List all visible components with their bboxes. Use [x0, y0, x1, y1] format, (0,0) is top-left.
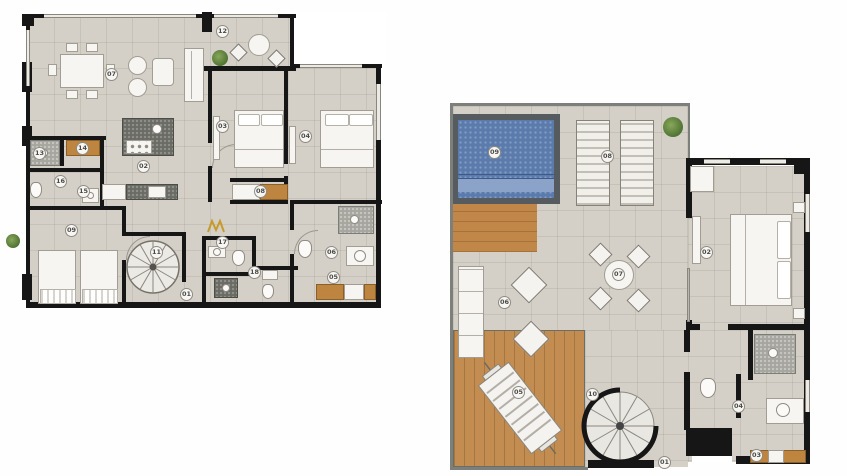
nightstand [793, 308, 805, 319]
room-label-bedroom-3: 09 [65, 224, 78, 237]
room-label-staircase: 11 [150, 246, 163, 259]
closet [690, 166, 714, 192]
room-label-closet: 14 [76, 142, 89, 155]
pool-shallow-step [458, 178, 554, 192]
plant-icon [663, 117, 683, 137]
hammock-icon [455, 352, 585, 464]
room-label-outdoor-dining: 07 [612, 268, 625, 281]
wood-deck-pool [453, 204, 537, 252]
nightstand [793, 202, 805, 213]
room-label-deck: 05 [512, 386, 525, 399]
wardrobe [692, 216, 701, 264]
parapet [450, 467, 588, 470]
floorplan-canvas: 12 07 02 03 04 08 13 14 16 15 09 11 01 1… [0, 0, 847, 476]
room-label-bathroom-3: 18 [248, 266, 261, 279]
room-label-bathroom-4: 06 [325, 246, 338, 259]
wall-pier [686, 428, 732, 456]
wall [684, 330, 690, 352]
sun-lounger [620, 120, 654, 206]
room-label-bedroom-1: 03 [216, 120, 229, 133]
room-label-kitchen: 02 [137, 160, 150, 173]
room-label-utility: 16 [54, 175, 67, 188]
room-label-hallway: 01 [180, 288, 193, 301]
vanity-white [768, 450, 784, 463]
room-label-pool: 09 [488, 146, 501, 159]
parapet [688, 103, 690, 161]
wall [684, 372, 690, 430]
wall-pier [794, 158, 810, 174]
window [760, 159, 786, 164]
bench-sofa [458, 266, 484, 358]
room-label-bathroom: 04 [732, 400, 745, 413]
room-label-living-dining: 07 [105, 68, 118, 81]
window [704, 159, 730, 164]
room-label-bedroom-2: 04 [299, 130, 312, 143]
basin [776, 403, 790, 417]
room-label-bathroom-1: 13 [33, 147, 46, 160]
room-label-dressing: 08 [254, 185, 267, 198]
room-label-bathroom-2: 15 [77, 185, 90, 198]
room-label-hall: 01 [658, 456, 671, 469]
shower-drain [768, 348, 778, 358]
room-label-bedroom: 02 [700, 246, 713, 259]
sun-lounger [576, 120, 610, 206]
room-label-staircase: 10 [586, 388, 599, 401]
room-label-wc: 03 [750, 449, 763, 462]
window [805, 380, 810, 412]
toilet [700, 378, 716, 398]
wall [728, 324, 808, 330]
parapet [450, 103, 690, 106]
parapet [450, 103, 453, 470]
bed [730, 214, 792, 306]
pool-water [458, 120, 554, 198]
room-label-lounge: 06 [498, 296, 511, 309]
room-label-balcony: 12 [216, 25, 229, 38]
room-label-wc: 17 [216, 236, 229, 249]
room-label-sundeck: 08 [601, 150, 614, 163]
room-label-closet-2: 05 [327, 271, 340, 284]
pool [452, 114, 560, 204]
wall [748, 330, 753, 380]
window [805, 194, 810, 232]
sliding-door [687, 268, 690, 322]
upper-level-plan: 09 08 07 06 05 10 02 04 03 01 [0, 0, 847, 476]
